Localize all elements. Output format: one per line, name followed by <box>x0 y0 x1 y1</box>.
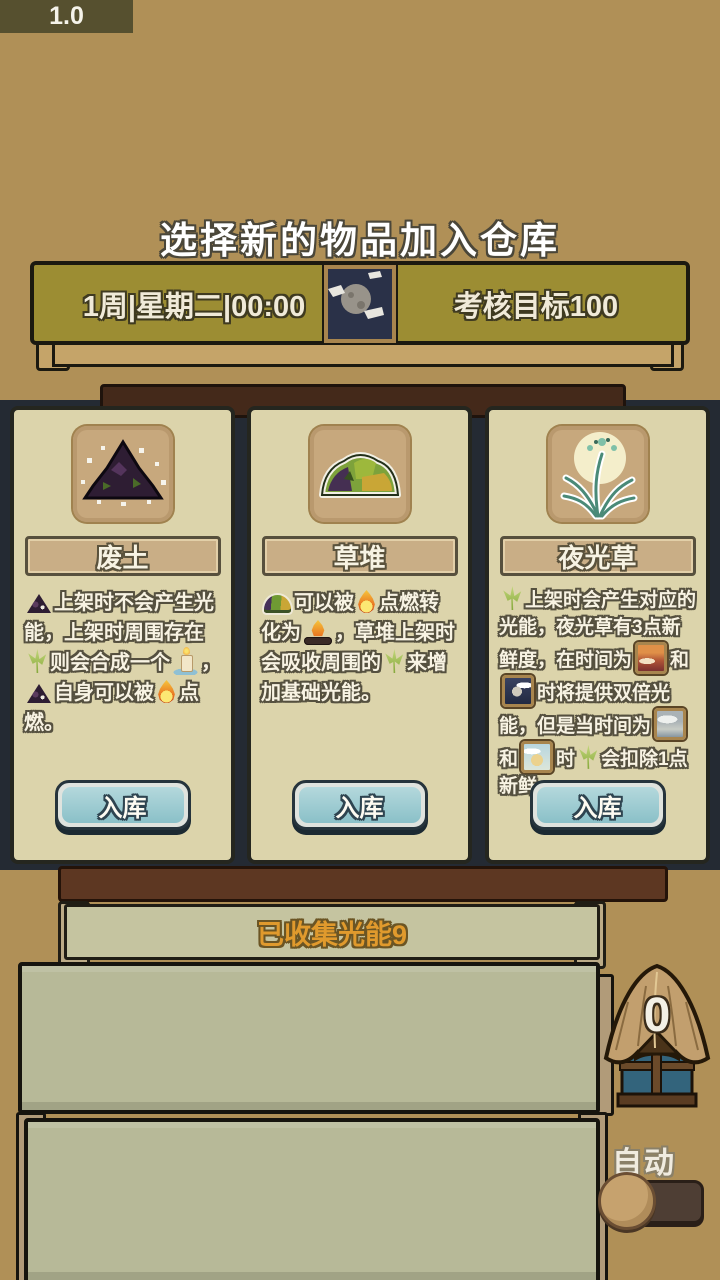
time-text: 1周|星期二|00:00 <box>48 283 340 325</box>
sprout-icon <box>384 649 404 673</box>
night-grass-icon <box>548 426 648 522</box>
weather-rain-icon <box>654 708 686 740</box>
card-name: 废土 <box>25 536 221 576</box>
waste-dirt-icon <box>73 426 173 522</box>
dirt-pile-icon <box>27 684 51 703</box>
storage-hut-button[interactable]: 0 <box>598 962 716 1108</box>
store-button[interactable]: 入库 <box>530 780 666 830</box>
moon-night-icon <box>324 265 396 343</box>
game-screen: 1.0 选择新的物品加入仓库 1周|星期二|00:00 考核目标100 <box>0 0 720 1280</box>
card-description: 上架时不会产生光能，上架时周围存在则会合成一个，自身可以被点燃。 <box>24 588 221 738</box>
campfire-icon <box>304 620 332 645</box>
store-button-label: 入库 <box>58 783 188 827</box>
item-card-wasteland[interactable]: 废土 上架时不会产生光能，上架时周围存在则会合成一个，自身可以被点燃。 入库 <box>10 406 235 864</box>
card-name: 夜光草 <box>500 536 696 576</box>
store-button[interactable]: 入库 <box>292 780 428 830</box>
dirt-pile-icon <box>27 594 51 613</box>
shelf-wood-bottom <box>58 866 668 902</box>
item-card-haystack[interactable]: 草堆 可以被点燃转化为，草堆上架时会吸收周围的来增加基础光能。 入库 <box>247 406 472 864</box>
auto-toggle-knob[interactable] <box>598 1172 656 1230</box>
grass-pile-icon <box>310 426 410 522</box>
weather-dusk-icon <box>635 642 667 674</box>
candle-icon <box>173 649 198 675</box>
hut-count: 0 <box>598 988 716 1043</box>
sprout-icon <box>502 586 522 610</box>
store-button[interactable]: 入库 <box>55 780 191 830</box>
fire-icon <box>357 590 376 613</box>
collected-energy-banner: 已收集光能9 <box>64 904 600 960</box>
page-title: 选择新的物品加入仓库 <box>0 210 720 264</box>
sprout-icon <box>27 649 47 673</box>
fire-icon <box>157 680 176 703</box>
card-description: 上架时会产生对应的光能，夜光草有3点新鲜度，在时间为和时将提供双倍光能，但是当时… <box>499 586 696 801</box>
weather-day-icon <box>521 741 553 773</box>
time-banner: 1周|星期二|00:00 考核目标100 <box>30 261 690 367</box>
store-button-label: 入库 <box>295 783 425 827</box>
grass-pile-icon <box>264 595 291 613</box>
collected-energy-label: 已收集光能9 <box>64 904 600 960</box>
store-button-label: 入库 <box>533 783 663 827</box>
goal-text: 考核目标100 <box>396 283 676 325</box>
sprout-icon <box>578 745 598 769</box>
weather-night-icon <box>502 675 534 707</box>
shelf-panel-1 <box>18 962 600 1114</box>
card-description: 可以被点燃转化为，草堆上架时会吸收周围的来增加基础光能。 <box>261 588 458 708</box>
version-badge: 1.0 <box>0 0 133 33</box>
shelf-panel-2 <box>24 1118 600 1280</box>
item-card-nightglow-grass[interactable]: 夜光草 上架时会产生对应的光能，夜光草有3点新鲜度，在时间为和时将提供双倍光能，… <box>485 406 710 864</box>
card-name: 草堆 <box>262 536 458 576</box>
